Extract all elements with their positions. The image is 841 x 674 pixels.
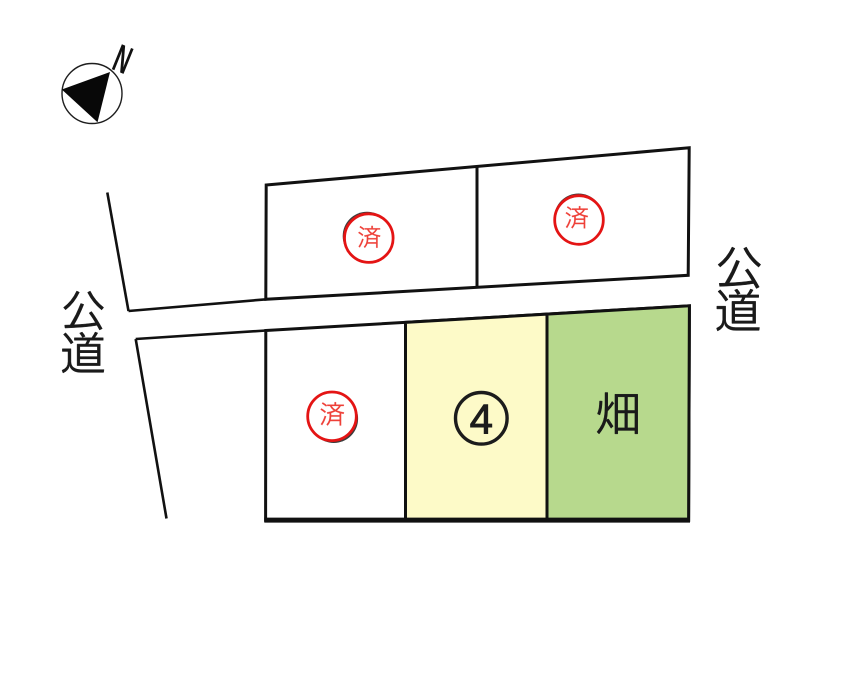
svg-text:4: 4: [470, 396, 493, 443]
